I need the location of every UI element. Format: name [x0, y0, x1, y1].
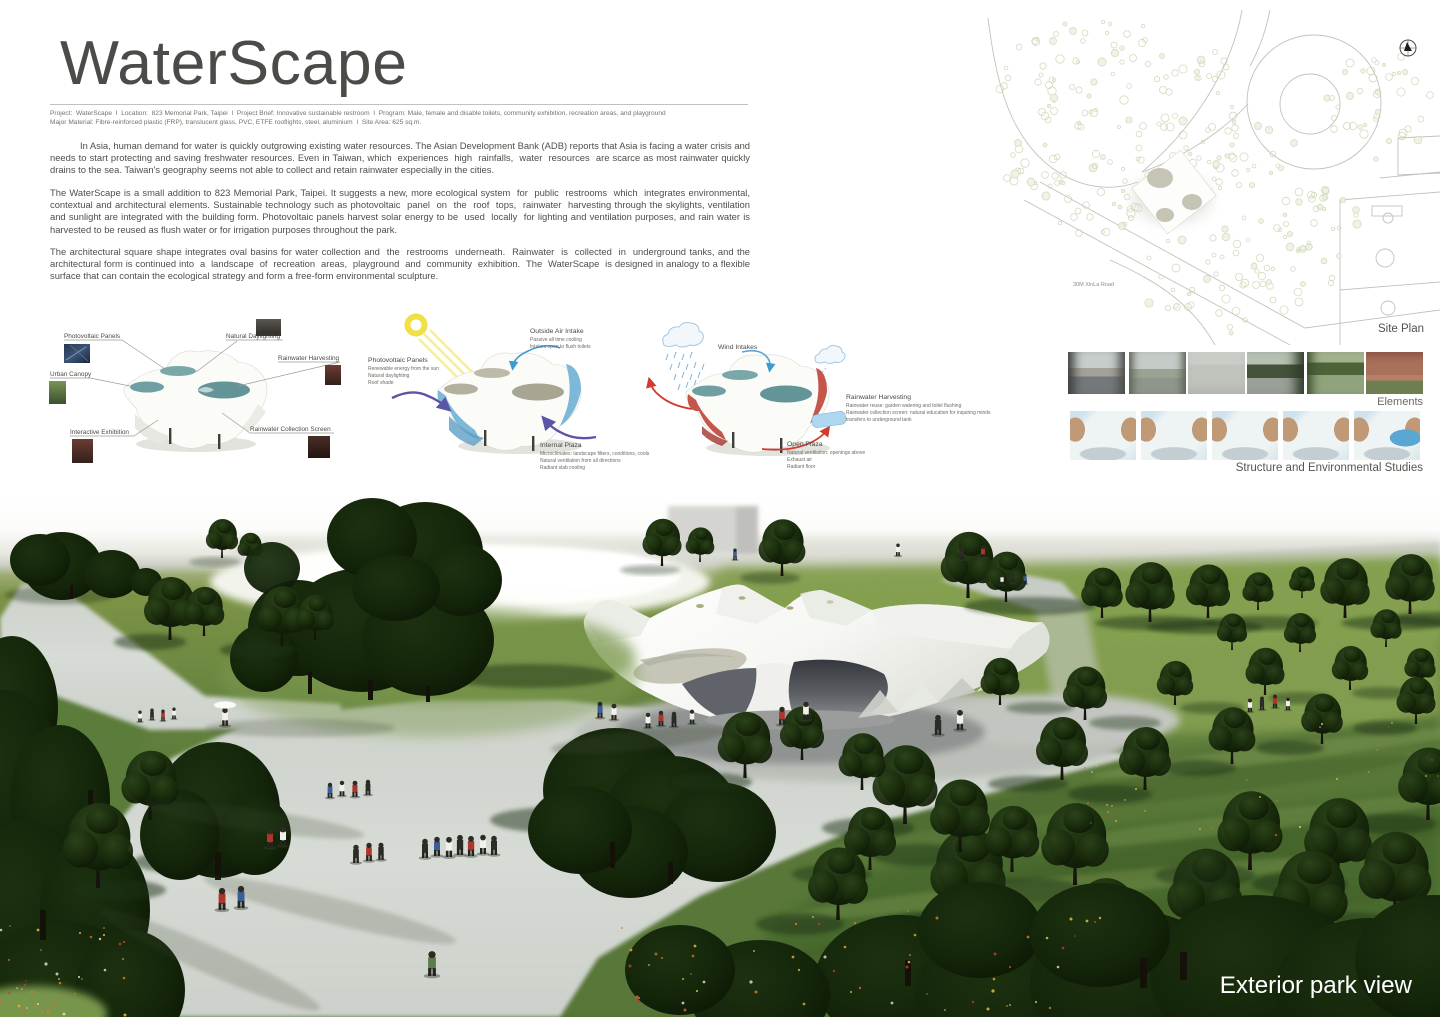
svg-text:Exterior park view: Exterior park view — [1220, 972, 1413, 999]
svg-text:Natural ventilation from all d: Natural ventilation from all directions — [540, 458, 621, 464]
svg-text:Outside Air Intake: Outside Air Intake — [530, 328, 584, 335]
svg-text:Microclimates: landscape filte: Microclimates: landscape filters, condit… — [540, 451, 650, 457]
svg-text:Rainwater collection screen: n: Rainwater collection screen: natural edu… — [846, 410, 991, 416]
svg-text:Radiant slab cooling: Radiant slab cooling — [540, 465, 585, 471]
svg-text:Urban Canopy: Urban Canopy — [50, 371, 92, 378]
svg-text:Renewable energy from the sun: Renewable energy from the sun — [368, 366, 439, 372]
svg-text:Passive all time cooling: Passive all time cooling — [530, 337, 582, 343]
svg-text:30M XinLa Road: 30M XinLa Road — [1073, 282, 1114, 288]
svg-text:Natural Daylighting: Natural Daylighting — [226, 333, 280, 340]
svg-text:Rainwater Harvesting: Rainwater Harvesting — [846, 394, 911, 401]
svg-text:Rainwater Collection Screen: Rainwater Collection Screen — [250, 426, 331, 433]
svg-text:Natural ventilation: openings: Natural ventilation: openings above — [787, 450, 865, 456]
svg-text:Rainwater Harvesting: Rainwater Harvesting — [278, 355, 340, 362]
svg-text:Interactive Exhibition: Interactive Exhibition — [70, 429, 129, 436]
svg-text:transfers to underground tank: transfers to underground tank — [846, 417, 912, 423]
svg-text:Photovoltaic Panels: Photovoltaic Panels — [368, 357, 428, 364]
svg-text:Exhaust air: Exhaust air — [787, 457, 812, 463]
svg-text:Natural daylighting: Natural daylighting — [368, 373, 410, 379]
svg-text:Wind Intakes: Wind Intakes — [718, 344, 758, 351]
svg-text:Intakes open to flush toilets: Intakes open to flush toilets — [530, 344, 591, 350]
svg-text:Photovoltaic Panels: Photovoltaic Panels — [64, 333, 120, 340]
svg-text:Rainwater reuse: garden wateri: Rainwater reuse: garden watering and toi… — [846, 403, 962, 409]
svg-text:Open Plaza: Open Plaza — [787, 441, 823, 448]
svg-text:Roof shade: Roof shade — [368, 380, 394, 386]
svg-text:Radiant floor: Radiant floor — [787, 464, 816, 470]
svg-text:Site Plan: Site Plan — [1378, 323, 1424, 335]
svg-text:Internal Plaza: Internal Plaza — [540, 442, 582, 449]
